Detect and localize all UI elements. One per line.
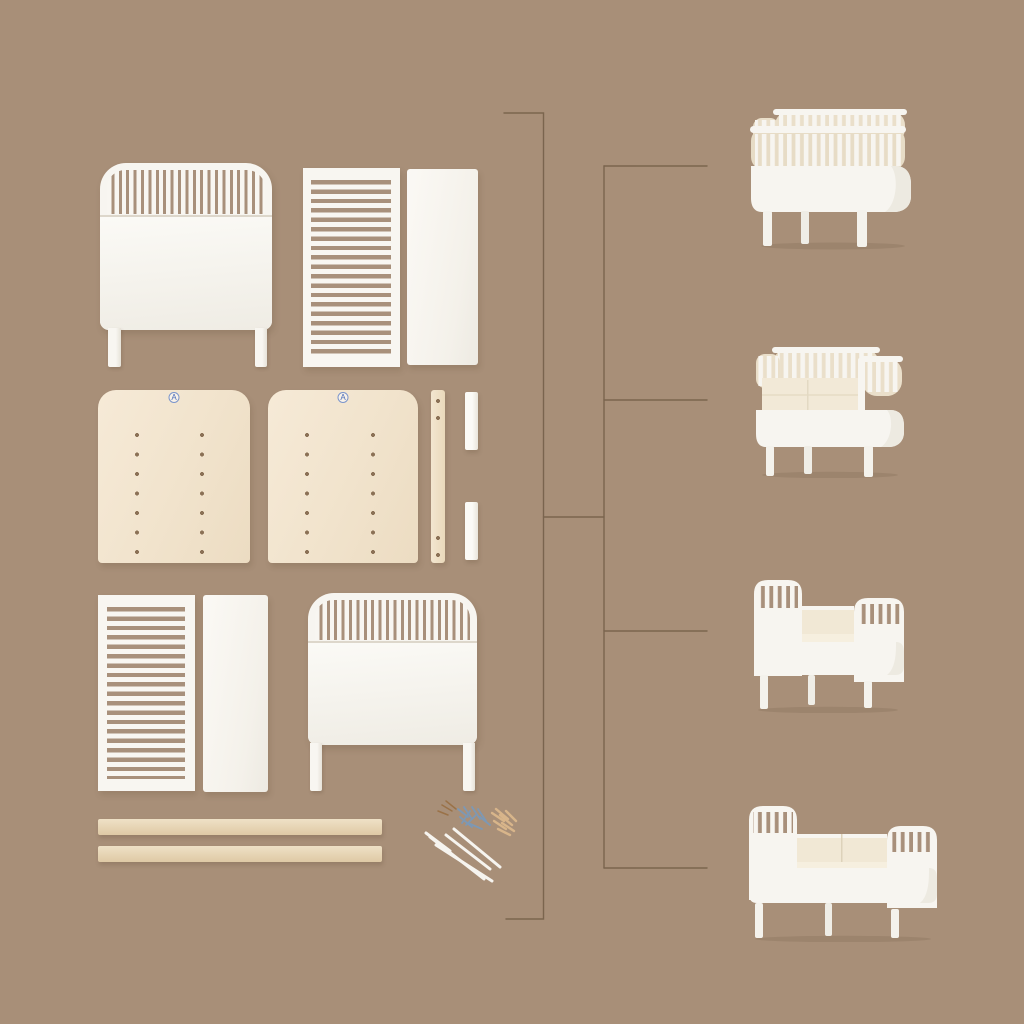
bed-legs (755, 903, 899, 938)
hardware-kit (420, 795, 520, 883)
crib-endboard-top (100, 163, 272, 367)
inner-back-panel (762, 378, 862, 412)
endboard-body (100, 163, 272, 330)
crib-open-front-drawing (750, 344, 906, 478)
crib-body (751, 166, 911, 212)
white-rods (426, 829, 500, 881)
hole-column (199, 426, 205, 563)
mattress-base-board-right: A (268, 390, 418, 563)
endboard-leg (108, 328, 121, 367)
hole-column (134, 426, 140, 563)
label-sticker: A (169, 392, 180, 403)
blue-screws (458, 807, 490, 829)
endboard-leg (310, 743, 322, 791)
solid-side-panel-top (407, 169, 478, 365)
shadow (762, 472, 898, 478)
spacer-block-top (465, 392, 478, 450)
stage-photo-baby-crib (745, 104, 917, 255)
bed-body (749, 868, 937, 903)
slatted-side-panel-top (303, 168, 400, 367)
junior-bed-extended-drawing (745, 800, 941, 942)
hole-column (370, 426, 376, 563)
assembly-diagram: A A (0, 0, 1024, 1024)
strip-holes-bottom (435, 529, 441, 563)
hole-column (304, 426, 310, 563)
crib-body (756, 410, 904, 447)
mattress-base-board-left: A (98, 390, 250, 563)
endboard-solid-panel (100, 217, 272, 330)
endboard-slat-band (315, 600, 470, 640)
endboard-leg (255, 328, 267, 367)
right-end-slat-rail (858, 356, 903, 412)
shadow (761, 243, 905, 250)
endboard-solid-panel (308, 643, 477, 745)
endboard-leg (463, 743, 475, 791)
small-screws (438, 801, 456, 815)
stage-photo-junior-bed (748, 574, 906, 718)
stage-photo-junior-bed-extended (745, 800, 941, 947)
shadow (755, 936, 931, 942)
front-slat-rail (750, 126, 906, 170)
label-sticker: A (338, 392, 349, 403)
crib-endboard-bottom (308, 593, 477, 793)
solid-side-panel-bottom (203, 595, 268, 792)
inner-back-panel (797, 834, 887, 868)
stage-photo-crib-open-front (750, 344, 906, 483)
drilled-support-strip (431, 390, 445, 563)
wooden-extension-rail-2 (98, 846, 382, 862)
wooden-dowels (492, 809, 516, 835)
inner-back-panel (802, 606, 854, 642)
shadow (758, 707, 898, 713)
wooden-extension-rail-1 (98, 819, 382, 835)
bed-body (754, 642, 904, 675)
junior-bed-drawing (748, 574, 906, 713)
slatted-side-panel-bottom (98, 595, 195, 791)
hardware-kit-drawing (420, 795, 520, 883)
endboard-slat-band (107, 170, 265, 214)
endboard-body (308, 593, 477, 745)
spacer-block-bottom (465, 502, 478, 560)
strip-holes-top (435, 392, 441, 426)
crib-legs (763, 210, 867, 247)
baby-crib-drawing (745, 104, 917, 250)
